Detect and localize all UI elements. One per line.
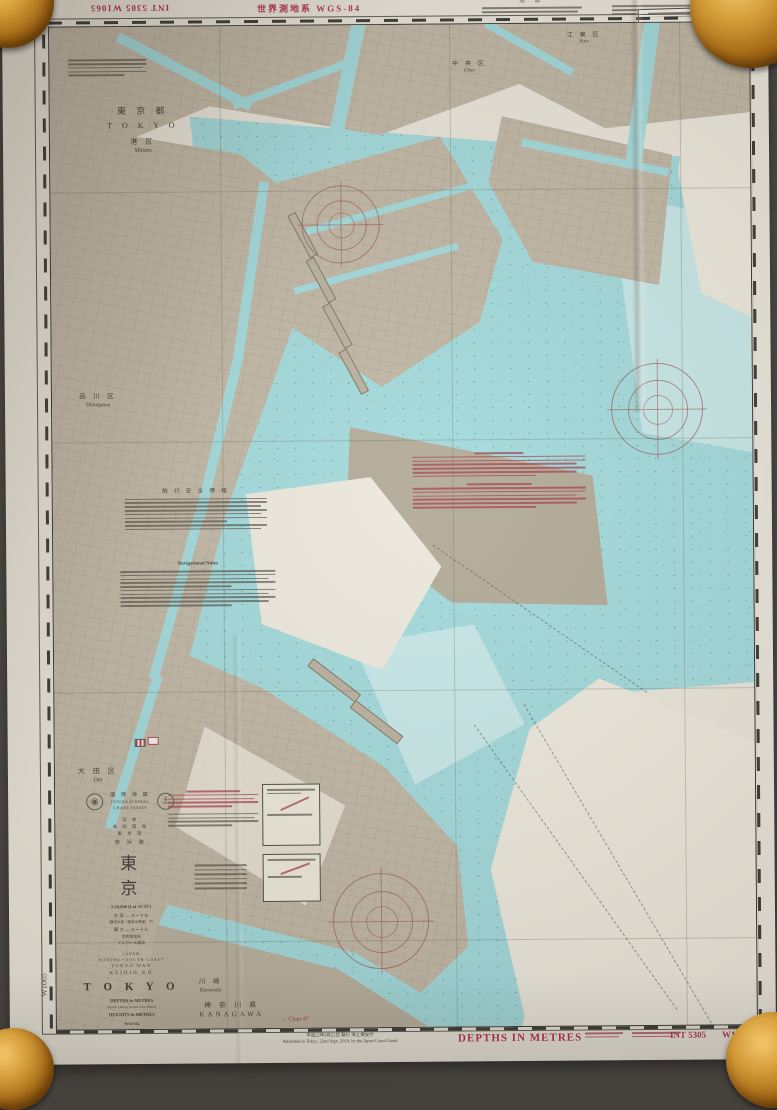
compass-rose-south [333, 873, 430, 970]
series-en2: CHART SERIES [107, 805, 153, 811]
tokyo-pref-en: T O K Y O [68, 120, 218, 132]
nav-notes-title-en: Navigational Notes [105, 561, 290, 569]
navigational-notes-en: Navigational Notes [105, 561, 290, 607]
top-note-jp-title: 注 意 [472, 0, 592, 5]
label-ota: 大 田 区 Ota [63, 767, 133, 785]
nav-safety-info-jp: 航 行 安 全 情 報 [111, 488, 281, 531]
top-note-jp: 注 意 [472, 0, 592, 13]
scale-label: 1:10,000 (Lat 35°35′) [68, 903, 194, 911]
signal-flag-icon [148, 737, 159, 745]
heights-en: HEIGHTS in METRES [69, 1011, 195, 1019]
publication-note-en: Published in Tokyo, 22nd Sept. 2010, by … [250, 1038, 430, 1046]
label-chuo: 中 央 区 Chuo [434, 60, 504, 75]
area-jp3: 東 京 湾 [67, 830, 193, 838]
note-block-topleft [61, 57, 153, 77]
inset-diagram-2 [263, 854, 321, 902]
depths-in-metres-label: DEPTHS IN METRES [458, 1030, 582, 1046]
geodetic-datum-label: 世界測地系 WGS-84 [257, 2, 361, 15]
chart-title-en: T O K Y O [69, 979, 195, 996]
chart-paper: INT 5305 W1065 世界測地系 WGS-84 注 意 Note W10… [2, 0, 776, 1065]
chart-map-face: 東 京 都 T O K Y O 港 区 Minato 中 央 区 Chuo 江 … [48, 21, 758, 1030]
int-number-flipped: INT 5305 W1065 [90, 2, 169, 15]
chuo-en: Chuo [434, 68, 504, 75]
title-block: ◉ 国 際 海 図 INTERNATIONAL CHART SERIES ⚓ 日… [67, 789, 195, 1031]
publication-note: 平成22年9月22日 発行 海上保安庁 Published in Tokyo, … [250, 1032, 430, 1046]
port-jp: 京 浜 港 [67, 839, 193, 848]
compass-rose-east [611, 363, 704, 456]
projection-jp: メルカトル図法 [68, 940, 194, 947]
chart-title-jp: 東 京 [78, 850, 194, 902]
port-en: KEIHIN KO [68, 969, 194, 977]
iho-seal-icon: ◉ [86, 793, 103, 810]
photo-of-nautical-chart: { "colors": { "paper": "#e9e4d8", "land"… [0, 0, 777, 1080]
int-number-bottom: INT 5305 [670, 1029, 706, 1041]
label-tokyo-pref: 東 京 都 T O K Y O 港 区 Minato [68, 104, 218, 156]
depth-unit-jp-sub: （最低水面（基本水準面）下） [68, 920, 194, 926]
jcg-anchor-seal-icon: ⚓ [157, 793, 174, 810]
nav-safety-title-jp: 航 行 安 全 情 報 [111, 488, 281, 497]
ota-en: Ota [63, 776, 133, 785]
minato-en: Minato [68, 147, 218, 156]
inset-diagram-1 [262, 784, 320, 846]
label-shinagawa: 品 川 区 Shinagawa [58, 393, 138, 410]
tokyo-pref-jp: 東 京 都 [68, 104, 218, 117]
compass-rose-north [301, 185, 380, 264]
title-block-seals: ◉ 国 際 海 図 INTERNATIONAL CHART SERIES ⚓ [67, 789, 193, 814]
bottom-small-magenta-note-1 [585, 1032, 623, 1037]
signal-flag-icon [135, 739, 146, 747]
koto-en: Koto [544, 39, 624, 46]
depths-en-sub: (below Datum, lowest Low Water) [69, 1004, 195, 1010]
works-notice-magenta [396, 451, 601, 508]
label-koto: 江 東 区 Koto [544, 31, 624, 46]
adjoining-chart-ref: ← Chart 87 [281, 1016, 309, 1024]
ota-jp: 大 田 区 [63, 767, 133, 777]
shinagawa-en: Shinagawa [58, 402, 138, 410]
